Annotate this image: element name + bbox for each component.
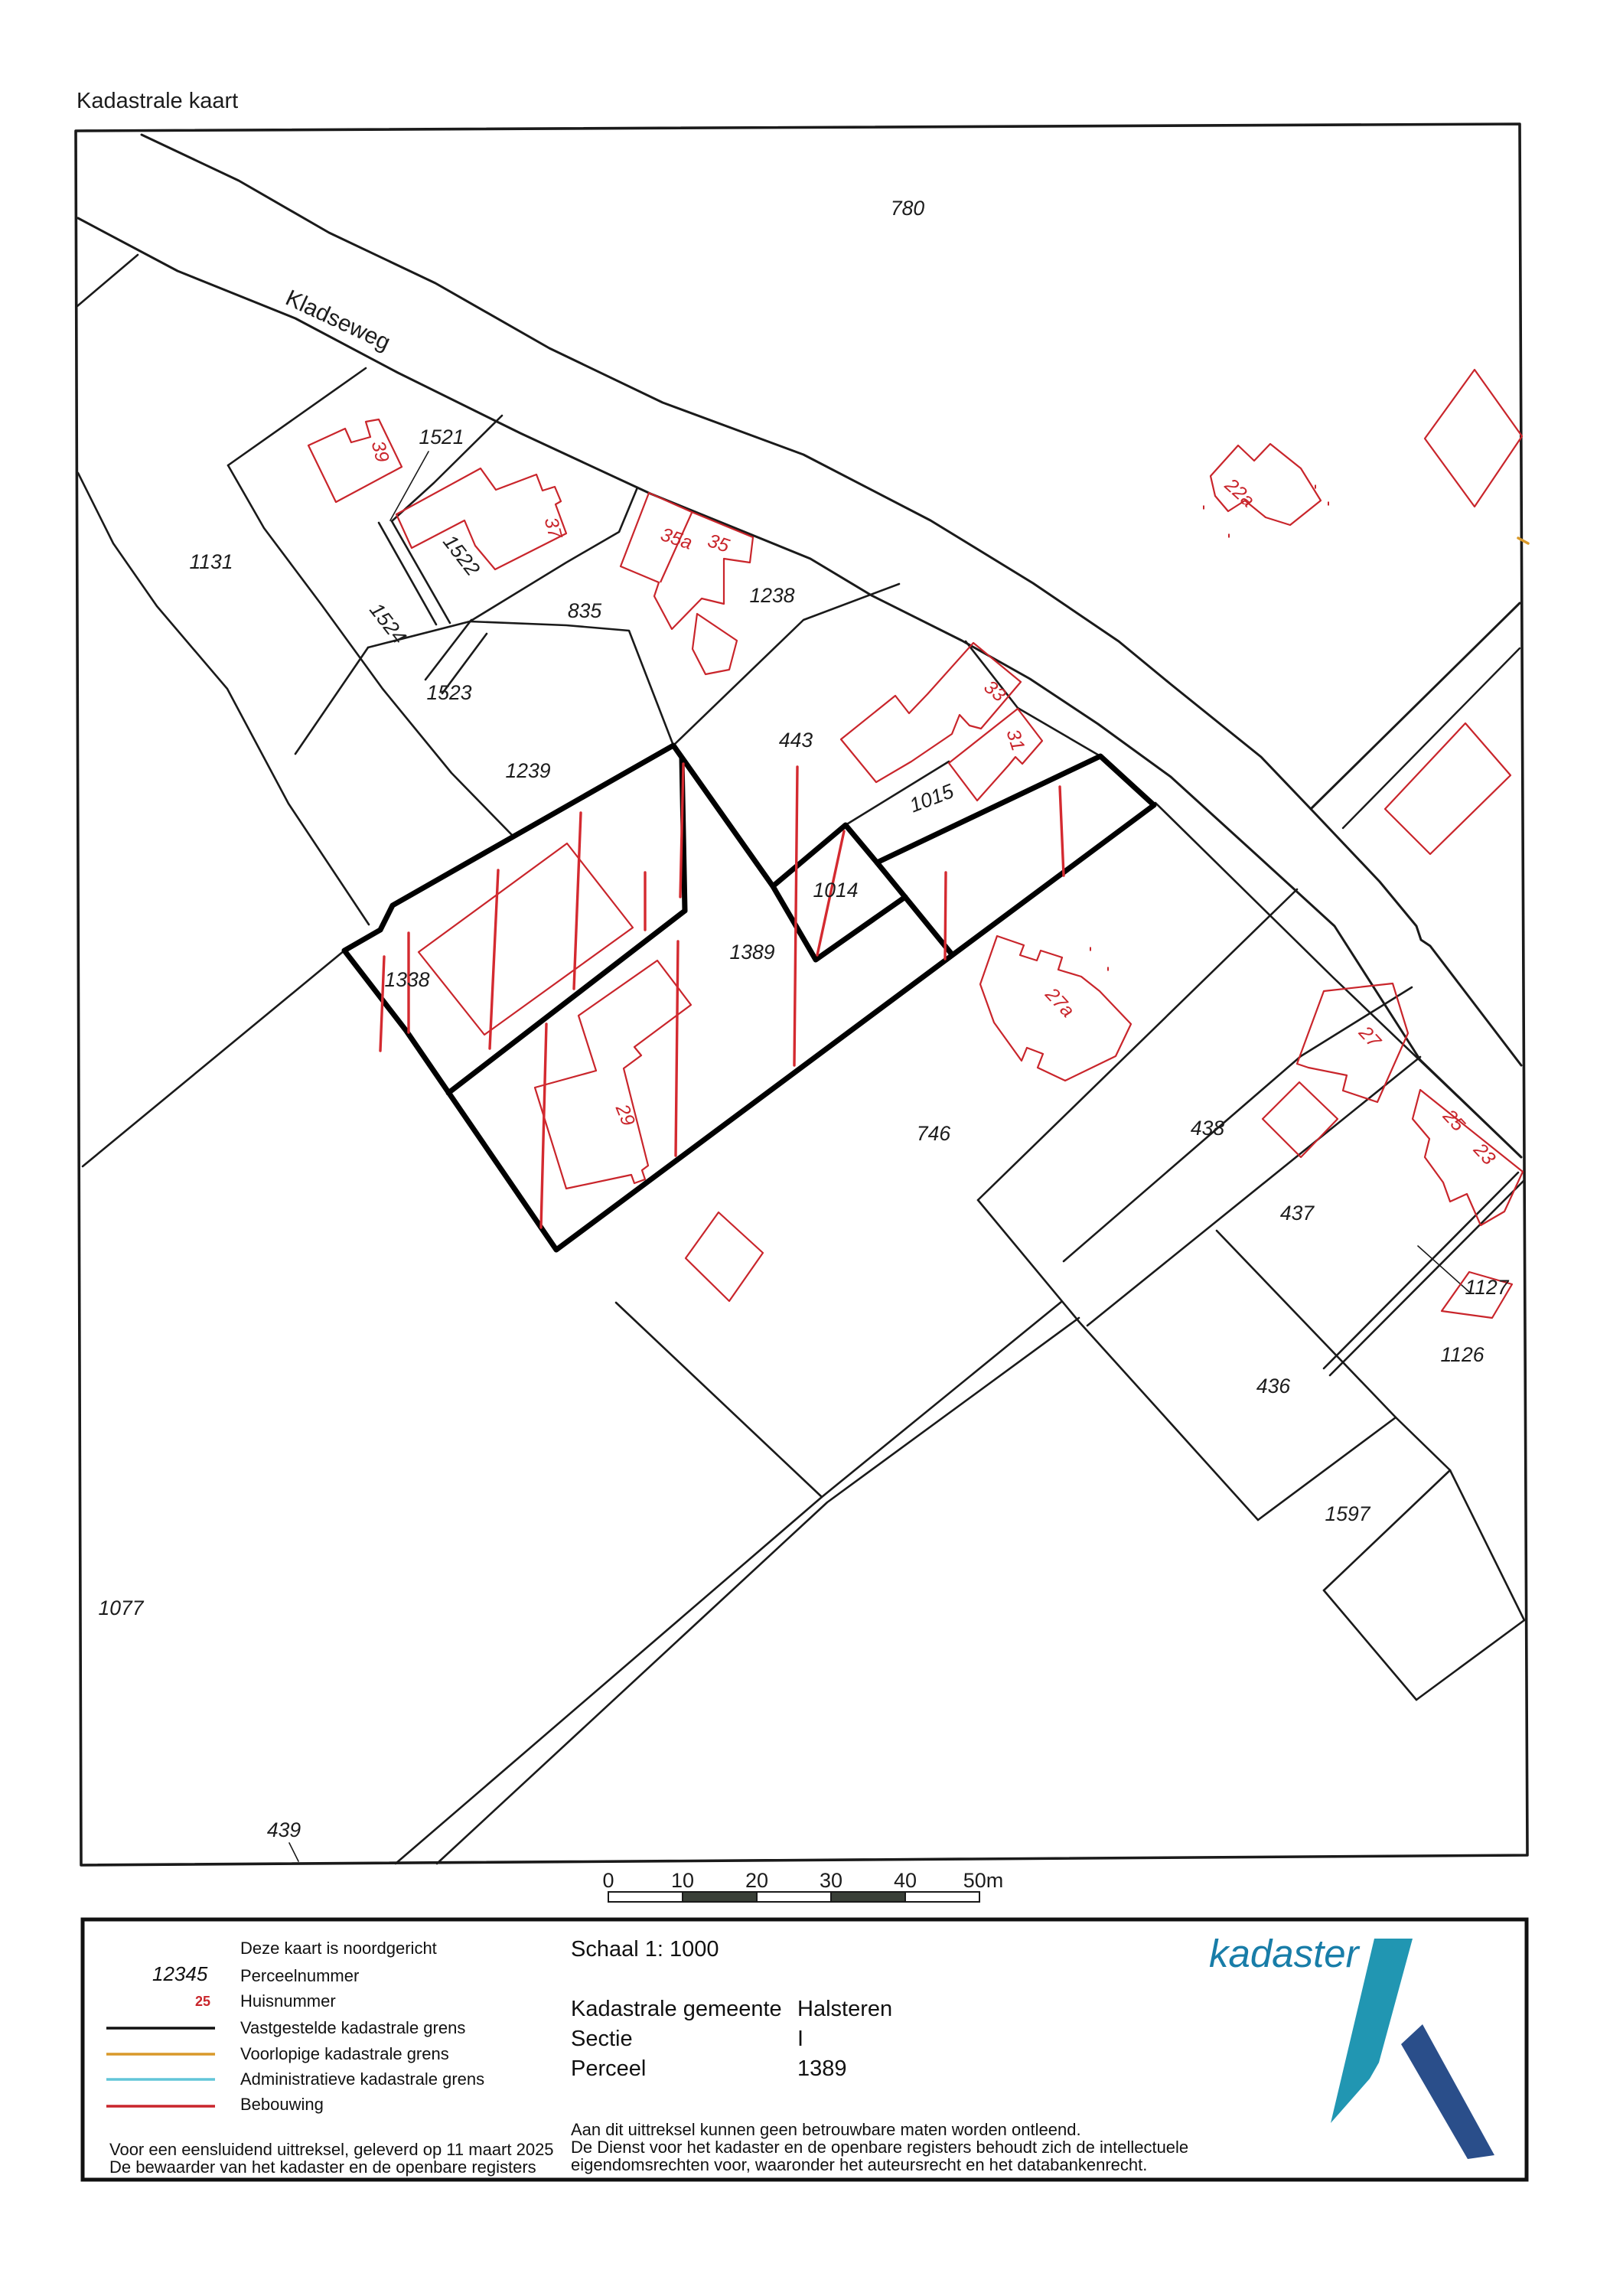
- svg-text:25: 25: [1439, 1105, 1469, 1136]
- svg-text:1389: 1389: [797, 2056, 847, 2081]
- svg-text:437: 437: [1280, 1202, 1315, 1225]
- svg-text:1014: 1014: [813, 879, 859, 902]
- svg-text:Kadastrale gemeente: Kadastrale gemeente: [571, 1997, 782, 2021]
- svg-text:12345: 12345: [152, 1962, 208, 1985]
- svg-text:1127: 1127: [1465, 1276, 1510, 1299]
- svg-text:50m: 50m: [963, 1869, 1004, 1892]
- svg-text:25: 25: [195, 1994, 210, 2009]
- svg-text:1522: 1522: [438, 530, 484, 580]
- svg-text:780: 780: [891, 197, 924, 220]
- svg-text:1597: 1597: [1325, 1502, 1371, 1525]
- svg-text:1524: 1524: [365, 598, 411, 648]
- svg-text:1131: 1131: [190, 550, 233, 573]
- svg-text:438: 438: [1191, 1117, 1224, 1140]
- svg-text:Sectie: Sectie: [571, 2027, 633, 2051]
- svg-text:1077: 1077: [99, 1596, 145, 1619]
- svg-text:27a: 27a: [1041, 983, 1079, 1021]
- svg-text:33: 33: [979, 676, 1009, 706]
- svg-text:Voor een eensluidend uittrekse: Voor een eensluidend uittreksel, gelever…: [109, 2140, 554, 2159]
- svg-text:436: 436: [1256, 1375, 1290, 1397]
- svg-text:35: 35: [705, 530, 732, 556]
- svg-text:Perceelnummer: Perceelnummer: [240, 1966, 359, 1985]
- svg-text:1338: 1338: [385, 968, 430, 991]
- svg-text:27: 27: [1354, 1022, 1386, 1053]
- svg-text:40: 40: [894, 1869, 917, 1892]
- svg-text:De bewaarder van het kadaster: De bewaarder van het kadaster en de open…: [109, 2157, 536, 2177]
- svg-text:1239: 1239: [506, 759, 551, 782]
- svg-text:De Dienst voor het kadaster en: De Dienst voor het kadaster en de openba…: [571, 2138, 1188, 2157]
- svg-text:29: 29: [611, 1101, 639, 1129]
- svg-text:Voorlopige kadastrale grens: Voorlopige kadastrale grens: [240, 2044, 449, 2063]
- svg-text:Halsteren: Halsteren: [797, 1997, 892, 2021]
- svg-text:23: 23: [1469, 1139, 1500, 1169]
- svg-text:Perceel: Perceel: [571, 2056, 646, 2081]
- svg-text:1238: 1238: [750, 584, 795, 607]
- svg-text:Aan dit uittreksel kunnen geen: Aan dit uittreksel kunnen geen betrouwba…: [571, 2120, 1081, 2139]
- svg-text:I: I: [797, 2027, 803, 2051]
- svg-text:eigendomsrechten voor, waarond: eigendomsrechten voor, waaronder het aut…: [571, 2155, 1147, 2174]
- svg-text:0: 0: [602, 1869, 614, 1892]
- svg-text:1126: 1126: [1441, 1343, 1484, 1366]
- svg-text:kadaster: kadaster: [1209, 1932, 1361, 1975]
- svg-text:39: 39: [367, 439, 393, 465]
- svg-text:Administratieve kadastrale gre: Administratieve kadastrale grens: [240, 2069, 484, 2089]
- svg-text:Schaal 1: 1000: Schaal 1: 1000: [571, 1937, 719, 1962]
- svg-text:37: 37: [540, 515, 567, 542]
- svg-text:31: 31: [1002, 726, 1028, 753]
- svg-text:20: 20: [745, 1869, 768, 1892]
- svg-text:746: 746: [917, 1122, 950, 1145]
- svg-text:30: 30: [820, 1869, 842, 1892]
- svg-text:835: 835: [568, 599, 601, 622]
- svg-text:22a: 22a: [1220, 474, 1259, 511]
- svg-text:35a: 35a: [658, 523, 695, 554]
- svg-text:1521: 1521: [419, 426, 464, 448]
- svg-text:Bebouwing: Bebouwing: [240, 2095, 324, 2114]
- svg-text:10: 10: [671, 1869, 694, 1892]
- svg-text:1523: 1523: [427, 681, 472, 704]
- svg-text:1015: 1015: [906, 779, 957, 817]
- svg-text:Deze kaart is noordgericht: Deze kaart is noordgericht: [240, 1939, 437, 1958]
- svg-text:Kadastrale kaart: Kadastrale kaart: [77, 89, 238, 113]
- svg-text:Huisnummer: Huisnummer: [240, 1991, 336, 2011]
- svg-text:439: 439: [267, 1818, 301, 1841]
- svg-text:Vastgestelde kadastrale grens: Vastgestelde kadastrale grens: [240, 2018, 465, 2037]
- svg-text:1389: 1389: [730, 941, 775, 964]
- svg-text:443: 443: [779, 729, 813, 752]
